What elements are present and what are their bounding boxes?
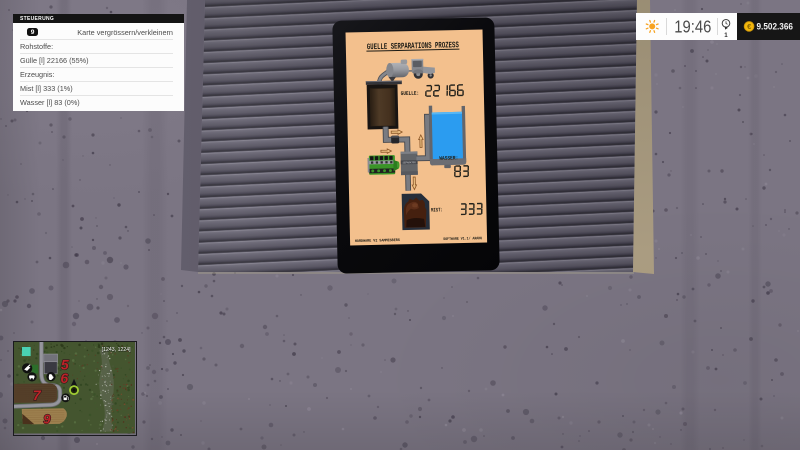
svg-text:SEPARATOR: SEPARATOR xyxy=(403,161,416,164)
svg-text:MIST:: MIST: xyxy=(431,207,443,213)
svg-text:9.502.366: 9.502.366 xyxy=(756,21,793,32)
svg-text:[1243, 1224]: [1243, 1224] xyxy=(101,347,131,353)
svg-text:GUELLE:: GUELLE: xyxy=(401,90,420,97)
svg-text:19:46: 19:46 xyxy=(674,17,711,37)
svg-text:9: 9 xyxy=(43,411,51,426)
svg-text:7: 7 xyxy=(32,387,41,403)
svg-text:SOFTWARE V1.1/ ARAHU: SOFTWARE V1.1/ ARAHU xyxy=(443,236,483,242)
svg-text:6: 6 xyxy=(60,370,68,386)
svg-text:WASSER:: WASSER: xyxy=(439,155,458,161)
svg-text:HARDWARE V2 SAMMESBERS: HARDWARE V2 SAMMESBERS xyxy=(355,239,401,244)
